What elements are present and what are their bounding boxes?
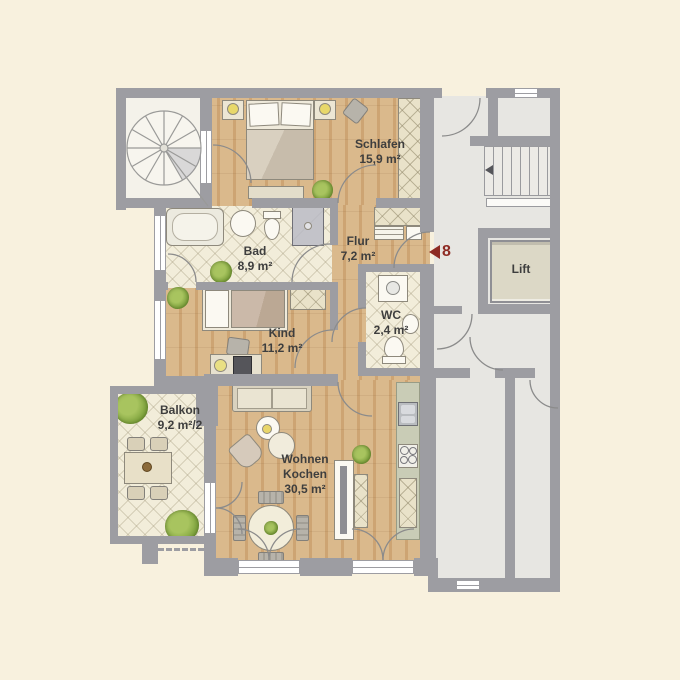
wall (358, 342, 366, 368)
room-name: Wohnen (262, 452, 348, 467)
room-area: 7,2 m² (318, 249, 398, 264)
room-name: Flur (318, 234, 398, 249)
wall (434, 306, 462, 314)
wall (428, 578, 560, 592)
wall (204, 374, 338, 382)
wall (330, 282, 338, 330)
wardrobe-kind (290, 287, 326, 310)
wall (358, 368, 420, 376)
room-area: 15,9 m² (330, 152, 430, 167)
wall (434, 368, 470, 378)
wall (196, 282, 332, 290)
window (154, 300, 166, 360)
floor-stair-room (124, 98, 204, 200)
dining-chair-left (233, 515, 246, 541)
room-name: Balkon (136, 403, 224, 418)
lamp-right (319, 103, 331, 115)
wall (478, 228, 560, 238)
room-name: Schlafen (330, 137, 430, 152)
window (154, 215, 166, 271)
stove-burner-1 (400, 446, 409, 455)
window (204, 482, 216, 534)
wall (420, 268, 434, 368)
window (456, 580, 480, 590)
balcony-railing (110, 386, 204, 394)
lamp-left (227, 103, 239, 115)
staircase-straight (484, 146, 556, 196)
bed-pillow-right (280, 102, 311, 127)
room-label-wc: WC 2,4 m² (362, 308, 420, 338)
stove-burner-3 (400, 456, 408, 464)
unit-direction-icon (429, 245, 440, 259)
wall (495, 368, 535, 378)
window (514, 88, 538, 98)
plate-kind (214, 359, 227, 372)
kind-bed-blanket (231, 290, 285, 328)
wall (200, 96, 212, 130)
wall (478, 304, 560, 314)
wall (550, 96, 560, 592)
wall (204, 558, 238, 576)
kitchen-sink-basin2 (401, 416, 415, 423)
room-label-wohnen: Wohnen Kochen 30,5 m² (262, 452, 348, 497)
room-area: 8,9 m² (215, 259, 295, 274)
balcony-chair-2 (150, 437, 168, 451)
wall (505, 378, 515, 592)
room-area: 2,4 m² (362, 323, 420, 338)
unit-marker: 8 (429, 243, 451, 261)
kind-bed-pillow (205, 290, 229, 328)
wall (478, 228, 488, 314)
unit-number: 8 (442, 243, 451, 261)
wall (116, 88, 126, 210)
sofa-seat-left (237, 388, 272, 409)
bathtub-inner (172, 213, 218, 241)
wall (154, 198, 212, 208)
wall (252, 198, 338, 208)
balcony-chair-4 (150, 486, 168, 500)
room-name: WC (362, 308, 420, 323)
laptop-kind (233, 356, 252, 375)
wall (116, 88, 442, 98)
wall (300, 558, 352, 576)
wall (470, 136, 560, 146)
bed-blanket (246, 129, 314, 180)
stairs-direction-icon (485, 165, 493, 175)
dining-chair-right (296, 515, 309, 541)
room-name-2: Kochen (262, 467, 348, 482)
room-label-schlafen: Schlafen 15,9 m² (330, 137, 430, 167)
room-label-kind: Kind 11,2 m² (240, 326, 324, 356)
bed-pillow-left (248, 102, 279, 127)
window (200, 130, 212, 184)
room-label-bad: Bad 8,9 m² (215, 244, 295, 274)
staircase-landing (486, 198, 556, 207)
property-line (158, 548, 204, 551)
sink-bad (230, 210, 256, 237)
floor-neighbor-apartment (434, 314, 558, 578)
radiator (354, 474, 368, 528)
room-name: Kind (240, 326, 324, 341)
kitchen-sink-basin (401, 405, 415, 414)
balcony-table-knot (142, 462, 152, 472)
wall (486, 88, 514, 98)
shower-drain (304, 222, 312, 230)
stove-burner-4 (408, 455, 417, 464)
washer-wc-door (386, 281, 400, 295)
wall (488, 98, 498, 136)
wall (154, 282, 168, 290)
room-label-balkon: Balkon 9,2 m²/2 (136, 403, 224, 433)
window (352, 560, 414, 574)
window (238, 560, 300, 574)
sofa-seat-right (272, 388, 307, 409)
room-name: Lift (490, 262, 552, 277)
closet-flur (374, 207, 422, 226)
balcony-chair-3 (127, 486, 145, 500)
cup-on-table (262, 424, 272, 434)
room-name: Bad (215, 244, 295, 259)
balcony-railing (110, 386, 118, 544)
room-area: 11,2 m² (240, 341, 324, 356)
wall (358, 272, 366, 308)
room-label-lift: Lift (490, 262, 552, 277)
floor-plan-page: { "plan": { "title": "apartment-floor-pl… (0, 0, 680, 680)
room-area: 9,2 m²/2 (136, 418, 224, 433)
balcony-chair-1 (127, 437, 145, 451)
room-label-flur: Flur 7,2 m² (318, 234, 398, 264)
toilet-wc-tank (382, 356, 406, 364)
stove-burner-2 (409, 447, 417, 455)
wall (420, 368, 436, 576)
kitchen-cabinet (399, 478, 417, 528)
balcony-railing (110, 536, 208, 544)
room-area: 30,5 m² (262, 482, 348, 497)
